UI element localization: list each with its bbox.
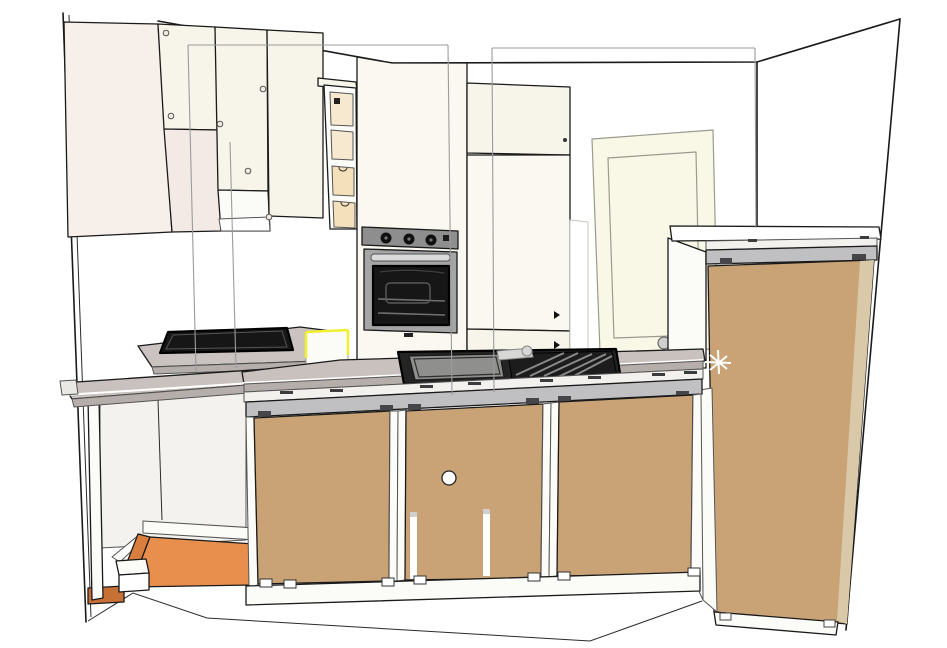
cabinet-knob[interactable] <box>245 168 251 174</box>
cabinet-foot <box>558 572 570 580</box>
base-cabinet-back-panel[interactable] <box>254 411 390 584</box>
step-front <box>119 573 149 592</box>
cabinet-door[interactable] <box>215 27 268 191</box>
drawer[interactable] <box>332 166 354 196</box>
cabinet-foot <box>720 613 731 620</box>
cabinet-knob[interactable] <box>260 86 266 92</box>
cabinet-foot <box>528 573 540 581</box>
fitting-tick <box>860 236 869 239</box>
cabinet-foot <box>824 620 835 627</box>
base-cabinet-run[interactable] <box>244 369 703 605</box>
shelf-item <box>334 98 340 104</box>
cabinet-foot <box>414 576 426 584</box>
hinge-dot <box>563 138 567 142</box>
panel-slot <box>410 517 417 579</box>
cabinet-door[interactable] <box>64 22 172 237</box>
oven-knob-dot <box>384 236 387 239</box>
cabinet-door[interactable] <box>158 24 218 130</box>
shelf-board <box>219 217 270 231</box>
hinge-block <box>852 254 866 260</box>
hinge-block <box>380 405 393 411</box>
oven-display <box>443 235 449 241</box>
scene-canvas[interactable] <box>0 0 947 648</box>
fitting-tick <box>280 391 293 394</box>
fitting-tick <box>330 389 343 392</box>
cabinet-foot <box>260 579 272 587</box>
cabinet-knob[interactable] <box>168 113 174 119</box>
pantry-mid-door[interactable] <box>467 155 570 331</box>
drawer[interactable] <box>333 201 355 228</box>
oven-handle[interactable] <box>371 254 450 261</box>
hinge-block <box>720 258 732 264</box>
oven-vent-tab <box>404 333 413 337</box>
cabinet-knob[interactable] <box>266 214 272 220</box>
fitting-tick <box>748 239 757 242</box>
oven-knob-dot <box>429 238 432 241</box>
worktop-end-cap <box>60 380 78 395</box>
oven-window[interactable] <box>373 266 449 325</box>
fitting-tick <box>684 371 697 374</box>
guide-line <box>755 48 756 228</box>
panel-slot <box>483 514 490 576</box>
wall-cabinets-left[interactable] <box>64 22 323 237</box>
panel-slot-cap <box>410 512 417 517</box>
open-shelf-cell[interactable] <box>331 130 353 160</box>
panel-slot-cap <box>483 509 490 514</box>
fitting-tick <box>652 373 665 376</box>
cabinet-knob[interactable] <box>163 30 169 36</box>
cable-hole <box>442 471 456 485</box>
oven[interactable] <box>362 227 458 337</box>
fitting-tick <box>540 379 553 382</box>
hinge-block <box>408 404 421 410</box>
shelf-drawer-unit[interactable] <box>318 78 357 229</box>
cabinet-foot <box>382 578 394 586</box>
hinge-block <box>258 411 271 417</box>
step-top <box>116 559 149 575</box>
pantry-top-door[interactable] <box>467 83 570 155</box>
cabinet-foot <box>688 568 700 576</box>
open-shelf-cell[interactable] <box>330 92 353 126</box>
fitting-tick <box>468 382 481 385</box>
model-viewport[interactable] <box>0 0 947 648</box>
base-cabinet-back-panel[interactable] <box>405 404 543 580</box>
cabinet-knob[interactable] <box>217 121 223 127</box>
base-cabinet-back-panel[interactable] <box>557 395 693 576</box>
faucet-base <box>522 346 532 356</box>
fitting-tick <box>588 376 601 379</box>
cabinet-foot <box>284 580 296 588</box>
fitting-tick <box>420 385 433 388</box>
oven-knob-dot <box>407 237 410 240</box>
cabinet-door[interactable] <box>267 30 323 218</box>
hinge-block <box>526 398 539 404</box>
